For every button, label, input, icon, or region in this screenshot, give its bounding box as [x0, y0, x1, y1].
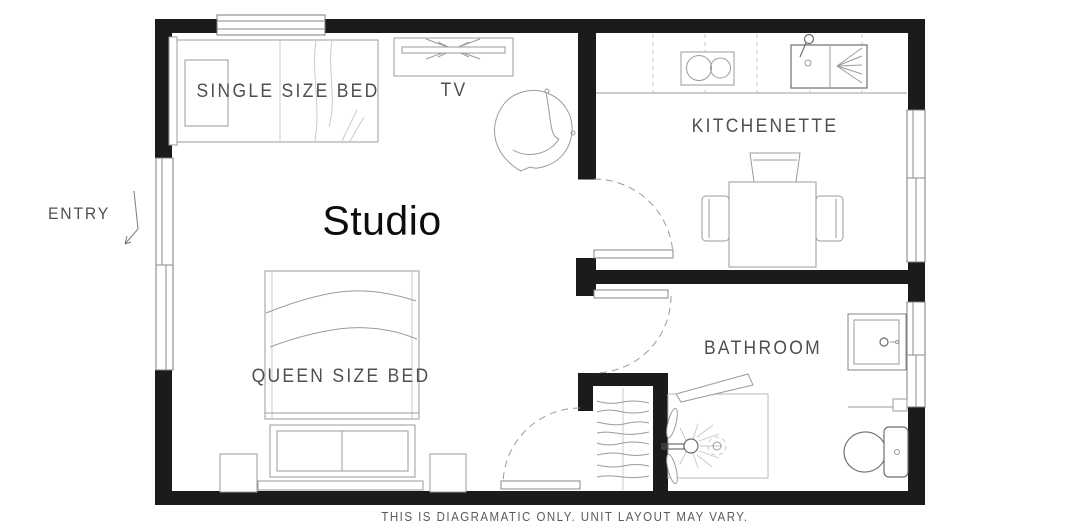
- shower-icon: [661, 374, 768, 485]
- disclaimer-text: THIS IS DIAGRAMATIC ONLY. UNIT LAYOUT MA…: [381, 510, 748, 524]
- studio-room-title: Studio: [322, 198, 441, 245]
- wardrobe-icon: [597, 388, 649, 490]
- kitchenette-label: KITCHENETTE: [692, 116, 839, 138]
- floor-plan-drawing: [0, 0, 1080, 531]
- kitchenette-door-swing-icon: [594, 179, 673, 258]
- armchair-icon: [494, 89, 575, 171]
- queen-bed-label: QUEEN SIZE BED: [252, 366, 431, 388]
- bathroom-window-icon: [907, 302, 925, 407]
- entry-arrow-icon: [125, 191, 138, 244]
- tv-label: TV: [441, 80, 468, 102]
- top-window-icon: [217, 15, 325, 35]
- entry-label: ENTRY: [48, 204, 110, 224]
- tv-icon: [394, 38, 513, 76]
- cooktop-icon: [681, 52, 734, 85]
- kitchen-sink-icon: [791, 35, 867, 89]
- entry-door-window-icon: [156, 158, 173, 370]
- kitchenette-window-icon: [907, 110, 925, 262]
- bathroom-label: BATHROOM: [704, 338, 822, 360]
- wardrobe-door-swing-icon: [501, 408, 580, 489]
- floor-plan: ENTRY SINGLE SIZE BED TV Studio QUEEN SI…: [0, 0, 1080, 531]
- single-bed-label: SINGLE SIZE BED: [196, 81, 379, 103]
- vanity-sink-icon: [848, 314, 907, 411]
- dining-table-icon: [702, 153, 843, 267]
- toilet-icon: [841, 427, 908, 477]
- bathroom-door-swing-icon: [594, 290, 671, 373]
